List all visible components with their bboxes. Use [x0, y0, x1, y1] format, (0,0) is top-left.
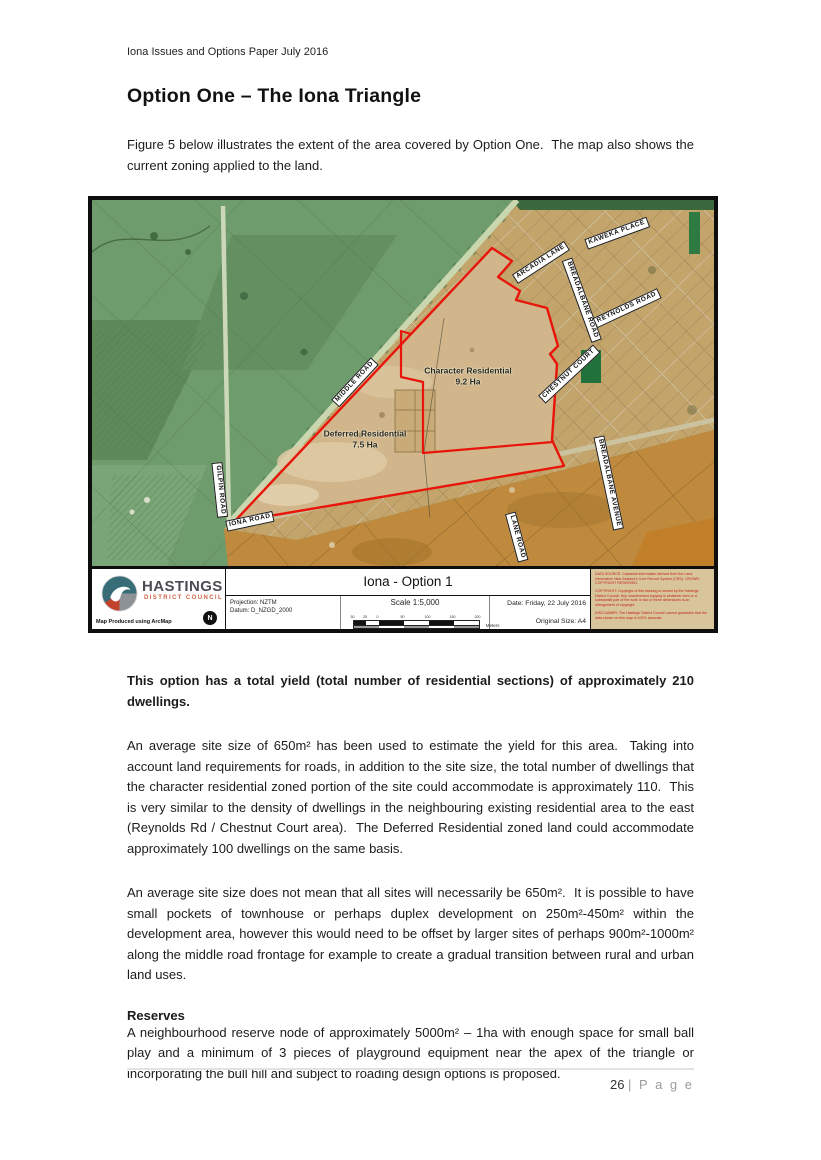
north-compass-icon: N	[203, 611, 217, 625]
original-size: Original Size: A4	[536, 618, 586, 625]
scale-text: Scale 1:5,000	[341, 598, 489, 607]
yield-summary-paragraph: This option has a total yield (total num…	[127, 671, 694, 712]
running-header: Iona Issues and Options Paper July 2016	[127, 46, 694, 58]
scale-cell: Scale 1:5,000 50 25 0 50 100 150 200	[341, 596, 490, 630]
page-title: Option One – The Iona Triangle	[127, 85, 694, 108]
zone-name: Deferred Residential	[324, 429, 407, 440]
scale-tick: 150	[450, 615, 456, 619]
logo-subtitle: DISTRICT COUNCIL	[144, 595, 223, 601]
site-size-paragraph: An average site size of 650m² has been u…	[127, 736, 694, 859]
legal-notes-cell: DATA SOURCE: Cadastral information deriv…	[591, 569, 714, 629]
scale-tick: 25	[363, 615, 367, 619]
average-site-paragraph: An average site size does not mean that …	[127, 883, 694, 986]
map-title: Iona - Option 1	[226, 569, 590, 596]
zone-area: 7.5 Ha	[324, 439, 407, 450]
projection-text: Projection: NZTM	[230, 599, 340, 607]
aerial-map-graphic	[92, 200, 714, 566]
council-logo-cell: HASTINGS DISTRICT COUNCIL Map Produced u…	[92, 569, 226, 629]
scale-tick: 50	[351, 615, 355, 619]
scale-tick: 0	[377, 615, 379, 619]
produced-with-text: Map Produced using ArcMap	[96, 619, 172, 625]
zone-label-character-residential: Character Residential 9.2 Ha	[424, 366, 511, 387]
intro-paragraph: Figure 5 below illustrates the extent of…	[127, 135, 694, 176]
page-number: 26	[610, 1077, 628, 1092]
zone-label-deferred-residential: Deferred Residential 7.5 Ha	[324, 429, 407, 450]
disclaimer-note: DISCLAIMER: The Hastings District Counci…	[595, 611, 710, 620]
figure-5-map: MIDDLE ROAD GILPIN ROAD IONA ROAD LANE R…	[88, 196, 718, 633]
page-footer: 26 | P a g e	[127, 1068, 694, 1092]
zone-area: 9.2 Ha	[424, 376, 511, 387]
scale-tick-labels: 50 25 0 50 100 150 200	[353, 615, 478, 620]
document-page: Iona Issues and Options Paper July 2016 …	[0, 0, 821, 1160]
zone-name: Character Residential	[424, 366, 511, 377]
data-source-note: DATA SOURCE: Cadastral information deriv…	[595, 572, 710, 586]
scale-tick: 200	[475, 615, 481, 619]
datum-text: Datum: D_NZGD_2000	[230, 607, 340, 615]
map-canvas: MIDDLE ROAD GILPIN ROAD IONA ROAD LANE R…	[92, 200, 714, 569]
hastings-council-logo-icon	[101, 575, 138, 612]
projection-cell: Projection: NZTM Datum: D_NZGD_2000	[226, 596, 341, 630]
map-title-block: HASTINGS DISTRICT COUNCIL Map Produced u…	[92, 569, 714, 629]
scale-bar-secondary	[353, 626, 480, 630]
map-date: Date: Friday, 22 July 2016	[507, 600, 586, 607]
date-cell: Date: Friday, 22 July 2016 Original Size…	[490, 596, 590, 630]
logo-title: HASTINGS	[142, 578, 223, 595]
reserves-heading: Reserves	[127, 1008, 694, 1023]
page-suffix: | P a g e	[628, 1077, 694, 1092]
scale-tick: 50	[401, 615, 405, 619]
scale-tick: 100	[425, 615, 431, 619]
map-footer-middle: Iona - Option 1 Projection: NZTM Datum: …	[226, 569, 591, 629]
copyright-note: COPYRIGHT: Copyright of this drawing is …	[595, 589, 710, 607]
